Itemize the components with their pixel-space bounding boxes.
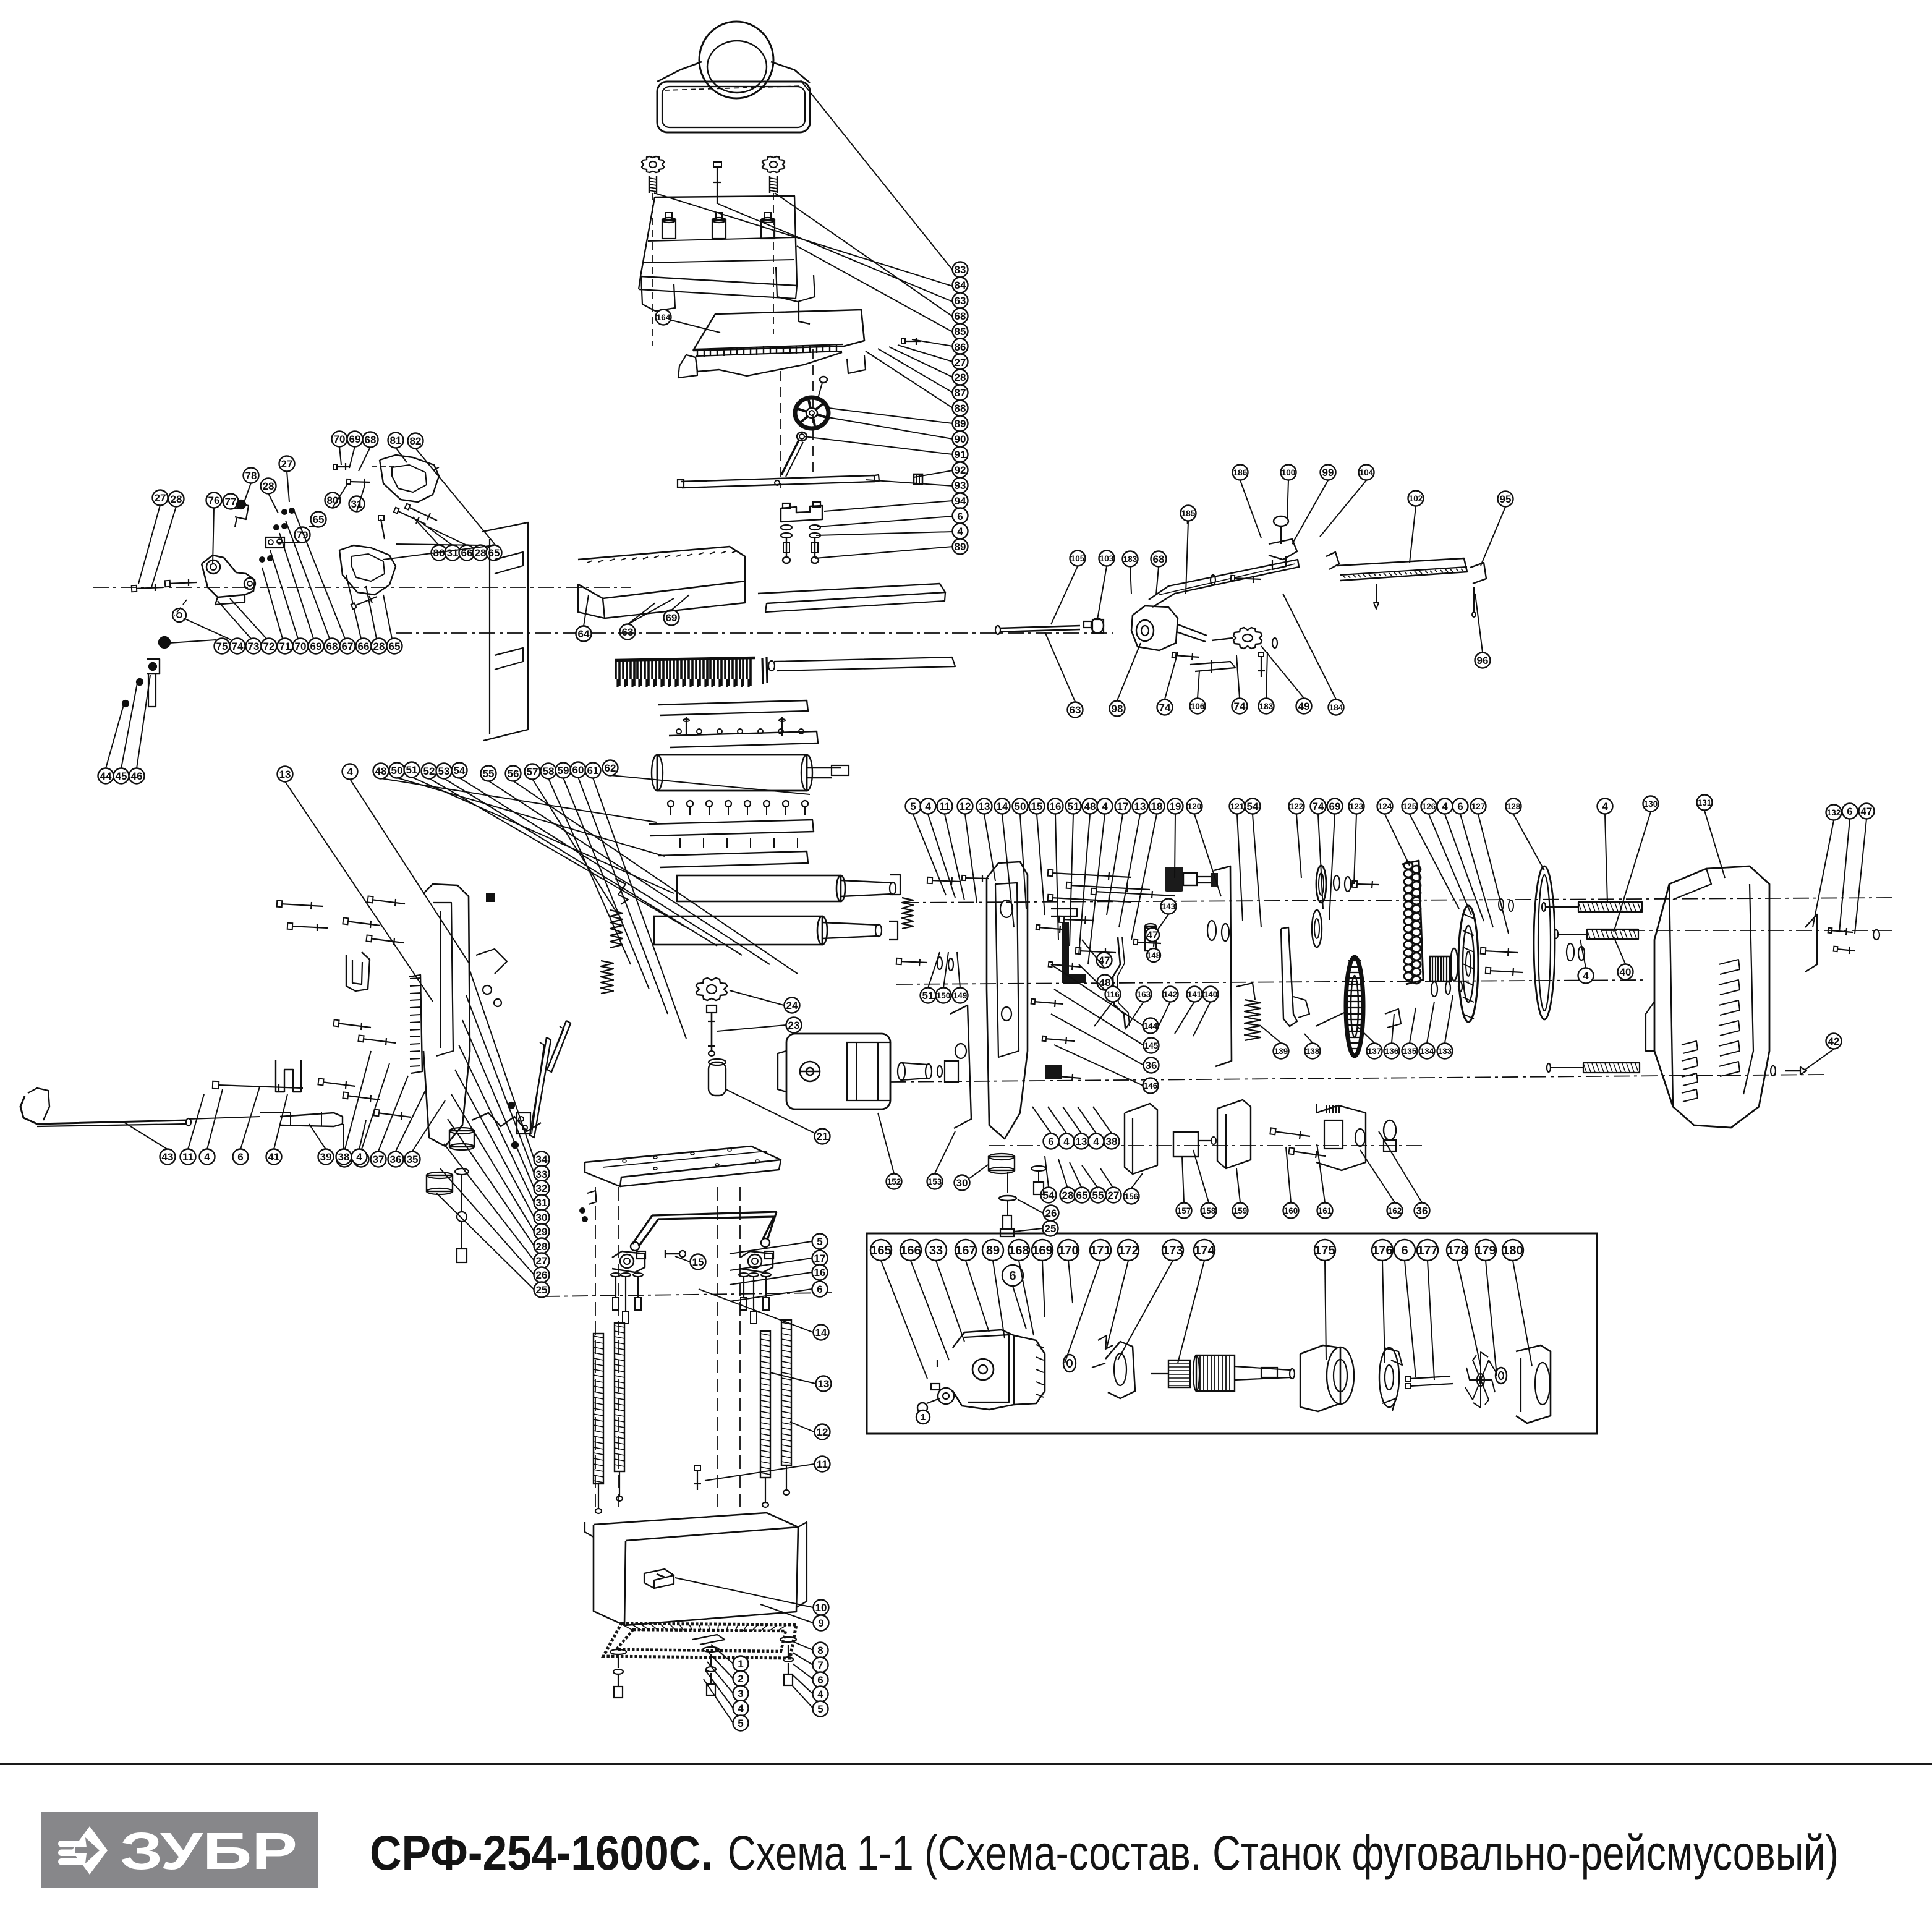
- svg-text:161: 161: [1318, 1206, 1332, 1215]
- svg-text:121: 121: [1230, 802, 1245, 811]
- svg-text:27: 27: [281, 458, 293, 470]
- svg-text:15: 15: [692, 1256, 704, 1268]
- svg-text:4: 4: [925, 801, 931, 812]
- svg-text:62: 62: [605, 762, 616, 774]
- svg-text:34: 34: [536, 1154, 548, 1165]
- svg-text:30: 30: [536, 1212, 548, 1223]
- svg-text:68: 68: [365, 434, 377, 446]
- svg-text:76: 76: [208, 495, 220, 506]
- svg-text:1: 1: [921, 1412, 926, 1423]
- svg-text:23: 23: [788, 1019, 800, 1031]
- svg-text:44: 44: [100, 770, 112, 782]
- svg-text:6: 6: [957, 511, 963, 522]
- svg-text:89: 89: [955, 541, 966, 553]
- svg-text:144: 144: [1144, 1021, 1158, 1031]
- svg-text:73: 73: [248, 640, 260, 652]
- svg-text:95: 95: [1500, 493, 1512, 505]
- svg-text:157: 157: [1177, 1206, 1191, 1215]
- svg-text:4: 4: [957, 526, 963, 537]
- svg-text:70: 70: [334, 433, 346, 445]
- svg-text:27: 27: [955, 357, 966, 368]
- svg-text:ЗУБР: ЗУБР: [120, 1822, 297, 1880]
- svg-text:100: 100: [1282, 468, 1296, 477]
- svg-text:63: 63: [955, 295, 966, 307]
- svg-text:28: 28: [171, 493, 182, 505]
- svg-text:74: 74: [232, 640, 244, 652]
- svg-text:33: 33: [536, 1168, 548, 1180]
- svg-text:18: 18: [1151, 801, 1163, 812]
- svg-text:124: 124: [1378, 802, 1392, 811]
- svg-text:53: 53: [438, 765, 450, 777]
- svg-text:68: 68: [1153, 553, 1165, 565]
- svg-text:65: 65: [1076, 1189, 1088, 1201]
- svg-text:68: 68: [955, 310, 966, 322]
- svg-text:51: 51: [1068, 801, 1079, 812]
- svg-text:10: 10: [815, 1602, 827, 1614]
- svg-text:42: 42: [1828, 1036, 1840, 1047]
- svg-text:92: 92: [955, 464, 966, 476]
- svg-text:47: 47: [1099, 955, 1110, 966]
- svg-text:133: 133: [1438, 1047, 1452, 1056]
- svg-text:5: 5: [817, 1236, 822, 1248]
- svg-text:179: 179: [1475, 1244, 1496, 1258]
- svg-text:150: 150: [937, 991, 951, 1000]
- svg-text:17: 17: [814, 1253, 826, 1264]
- svg-text:8: 8: [817, 1645, 823, 1656]
- svg-text:58: 58: [543, 765, 555, 777]
- svg-text:30: 30: [956, 1177, 968, 1189]
- svg-text:15: 15: [1031, 801, 1043, 812]
- svg-text:88: 88: [955, 402, 966, 414]
- svg-text:6: 6: [1847, 806, 1852, 817]
- svg-text:168: 168: [1008, 1244, 1029, 1258]
- svg-text:49: 49: [1298, 700, 1310, 712]
- svg-text:14: 14: [997, 801, 1008, 812]
- svg-text:69: 69: [349, 433, 361, 445]
- svg-text:4: 4: [817, 1688, 823, 1700]
- svg-text:142: 142: [1164, 990, 1178, 999]
- svg-text:69: 69: [666, 612, 678, 624]
- svg-text:6: 6: [1048, 1136, 1053, 1147]
- svg-text:51: 51: [406, 764, 418, 776]
- svg-text:184: 184: [1329, 703, 1343, 712]
- svg-text:19: 19: [1170, 801, 1181, 812]
- svg-text:43: 43: [162, 1151, 174, 1163]
- svg-text:27: 27: [536, 1255, 548, 1267]
- svg-text:70: 70: [295, 640, 307, 652]
- svg-text:173: 173: [1162, 1244, 1183, 1258]
- svg-text:106: 106: [1191, 702, 1205, 711]
- svg-text:85: 85: [955, 326, 966, 338]
- svg-text:4: 4: [738, 1703, 744, 1714]
- svg-text:17: 17: [1117, 801, 1129, 812]
- svg-text:21: 21: [817, 1131, 828, 1143]
- svg-text:141: 141: [1188, 990, 1202, 999]
- svg-text:163: 163: [1137, 990, 1151, 999]
- svg-text:11: 11: [939, 801, 950, 812]
- svg-text:90: 90: [955, 433, 966, 445]
- svg-text:46: 46: [131, 770, 143, 782]
- svg-text:87: 87: [955, 387, 966, 399]
- svg-text:52: 52: [423, 765, 435, 777]
- svg-text:167: 167: [955, 1244, 976, 1258]
- svg-text:77: 77: [225, 496, 237, 508]
- svg-text:4: 4: [204, 1151, 210, 1163]
- svg-text:165: 165: [870, 1244, 891, 1258]
- svg-text:164: 164: [657, 313, 671, 322]
- svg-text:75: 75: [216, 640, 228, 652]
- svg-text:81: 81: [390, 435, 402, 446]
- svg-text:170: 170: [1058, 1244, 1078, 1258]
- svg-text:102: 102: [1409, 494, 1423, 503]
- svg-text:65: 65: [389, 640, 401, 652]
- svg-text:156: 156: [1125, 1192, 1139, 1201]
- svg-text:64: 64: [578, 628, 590, 640]
- svg-text:69: 69: [310, 640, 322, 652]
- svg-text:50: 50: [391, 765, 403, 777]
- svg-text:89: 89: [955, 418, 966, 430]
- svg-text:54: 54: [1043, 1189, 1055, 1201]
- svg-text:160: 160: [1284, 1206, 1298, 1215]
- svg-text:4: 4: [347, 766, 353, 778]
- svg-text:126: 126: [1422, 802, 1436, 811]
- svg-text:159: 159: [1233, 1206, 1248, 1215]
- svg-text:99: 99: [1322, 467, 1334, 479]
- svg-text:98: 98: [1112, 703, 1123, 715]
- svg-text:1: 1: [738, 1658, 743, 1670]
- svg-text:16: 16: [814, 1267, 826, 1279]
- svg-text:186: 186: [1233, 468, 1248, 477]
- svg-text:28: 28: [263, 480, 274, 492]
- svg-text:47: 47: [1147, 929, 1159, 941]
- svg-text:40: 40: [1620, 966, 1632, 978]
- svg-text:4: 4: [1093, 1136, 1099, 1147]
- svg-text:14: 14: [815, 1327, 827, 1338]
- svg-text:57: 57: [527, 766, 538, 778]
- svg-text:13: 13: [279, 768, 291, 780]
- svg-text:48: 48: [1084, 801, 1096, 812]
- svg-text:11: 11: [817, 1458, 828, 1470]
- svg-text:103: 103: [1100, 554, 1114, 563]
- svg-text:5: 5: [738, 1717, 743, 1729]
- svg-text:105: 105: [1071, 554, 1085, 563]
- svg-text:41: 41: [268, 1151, 280, 1163]
- svg-text:131: 131: [1698, 798, 1712, 807]
- svg-text:54: 54: [454, 765, 466, 777]
- svg-text:74: 74: [1159, 702, 1171, 713]
- svg-text:5: 5: [910, 801, 916, 812]
- svg-text:91: 91: [955, 449, 966, 461]
- svg-text:136: 136: [1385, 1047, 1399, 1056]
- svg-text:27: 27: [1108, 1189, 1120, 1201]
- svg-text:47: 47: [1861, 806, 1873, 817]
- svg-text:71: 71: [279, 640, 291, 652]
- svg-text:Схема 1-1 (Схема-состав. Стано: Схема 1-1 (Схема-состав. Станок фуговаль…: [728, 1825, 1839, 1880]
- svg-text:32: 32: [536, 1183, 548, 1194]
- svg-text:63: 63: [1070, 704, 1081, 716]
- svg-text:116: 116: [1106, 990, 1120, 999]
- svg-text:6: 6: [1401, 1244, 1408, 1258]
- svg-text:12: 12: [817, 1426, 828, 1438]
- svg-text:67: 67: [342, 640, 354, 652]
- svg-text:59: 59: [558, 765, 569, 777]
- svg-text:68: 68: [326, 640, 338, 652]
- svg-text:38: 38: [338, 1151, 350, 1163]
- svg-text:4: 4: [356, 1151, 362, 1163]
- svg-text:180: 180: [1502, 1244, 1523, 1258]
- svg-text:45: 45: [116, 770, 127, 782]
- svg-text:6: 6: [1457, 801, 1463, 812]
- svg-text:31: 31: [536, 1197, 548, 1209]
- svg-text:6: 6: [817, 1283, 822, 1295]
- svg-text:4: 4: [1602, 801, 1608, 812]
- svg-text:162: 162: [1388, 1206, 1402, 1215]
- svg-text:24: 24: [786, 1000, 798, 1011]
- svg-text:26: 26: [536, 1269, 548, 1281]
- svg-text:145: 145: [1144, 1041, 1159, 1050]
- svg-text:4: 4: [1442, 801, 1448, 812]
- svg-text:172: 172: [1118, 1244, 1138, 1258]
- svg-text:6: 6: [237, 1151, 243, 1163]
- svg-text:61: 61: [587, 765, 599, 777]
- svg-text:11: 11: [182, 1151, 194, 1163]
- svg-text:169: 169: [1032, 1244, 1052, 1258]
- svg-text:93: 93: [955, 480, 966, 492]
- svg-text:6: 6: [817, 1674, 823, 1686]
- svg-text:138: 138: [1306, 1047, 1320, 1056]
- svg-text:153: 153: [928, 1177, 942, 1186]
- svg-text:82: 82: [410, 435, 422, 447]
- svg-text:139: 139: [1274, 1047, 1288, 1056]
- svg-text:9: 9: [818, 1617, 823, 1629]
- svg-text:134: 134: [1420, 1047, 1434, 1056]
- svg-text:148: 148: [1147, 951, 1161, 960]
- svg-text:36: 36: [1416, 1205, 1428, 1217]
- svg-text:25: 25: [1045, 1223, 1057, 1235]
- svg-text:4: 4: [1102, 801, 1108, 812]
- svg-text:33: 33: [929, 1244, 943, 1258]
- svg-text:146: 146: [1144, 1081, 1158, 1091]
- svg-text:78: 78: [245, 470, 257, 482]
- svg-text:51: 51: [922, 990, 934, 1002]
- svg-text:130: 130: [1644, 799, 1658, 809]
- svg-text:28: 28: [536, 1241, 548, 1253]
- svg-text:158: 158: [1202, 1206, 1216, 1215]
- svg-text:89: 89: [986, 1244, 1000, 1258]
- svg-text:12: 12: [960, 801, 971, 812]
- svg-text:26: 26: [1045, 1207, 1057, 1219]
- svg-text:29: 29: [536, 1226, 548, 1238]
- svg-text:177: 177: [1417, 1244, 1437, 1258]
- svg-text:120: 120: [1188, 802, 1202, 811]
- svg-text:37: 37: [373, 1154, 385, 1165]
- svg-text:149: 149: [953, 991, 968, 1000]
- svg-text:5: 5: [817, 1703, 823, 1715]
- svg-text:48: 48: [375, 765, 387, 777]
- svg-text:127: 127: [1471, 802, 1486, 811]
- svg-text:84: 84: [955, 279, 966, 291]
- svg-text:174: 174: [1194, 1244, 1215, 1258]
- svg-text:175: 175: [1314, 1244, 1335, 1258]
- svg-text:28: 28: [373, 640, 385, 652]
- svg-text:137: 137: [1368, 1047, 1382, 1056]
- svg-text:54: 54: [1247, 801, 1259, 812]
- svg-text:83: 83: [955, 264, 966, 276]
- svg-text:152: 152: [887, 1177, 901, 1186]
- svg-text:2: 2: [738, 1673, 743, 1685]
- svg-text:178: 178: [1447, 1244, 1467, 1258]
- svg-text:55: 55: [483, 768, 495, 780]
- svg-text:72: 72: [263, 640, 275, 652]
- svg-text:86: 86: [955, 341, 966, 353]
- svg-text:143: 143: [1162, 902, 1176, 911]
- svg-text:132: 132: [1827, 808, 1841, 817]
- svg-text:183: 183: [1123, 555, 1138, 564]
- svg-text:28: 28: [955, 372, 966, 383]
- svg-text:3: 3: [738, 1688, 743, 1700]
- svg-text:13: 13: [1076, 1136, 1087, 1147]
- svg-text:28: 28: [475, 547, 487, 559]
- svg-text:55: 55: [1092, 1189, 1104, 1201]
- svg-text:122: 122: [1290, 802, 1304, 811]
- svg-text:125: 125: [1403, 802, 1417, 811]
- svg-text:50: 50: [1015, 801, 1026, 812]
- svg-text:27: 27: [155, 492, 166, 504]
- svg-text:183: 183: [1259, 702, 1274, 711]
- svg-text:56: 56: [508, 768, 519, 780]
- svg-text:65: 65: [313, 514, 325, 526]
- svg-text:66: 66: [358, 640, 370, 652]
- svg-text:171: 171: [1090, 1244, 1110, 1258]
- svg-text:13: 13: [818, 1378, 830, 1390]
- svg-text:7: 7: [817, 1659, 823, 1671]
- svg-text:6: 6: [1009, 1269, 1016, 1283]
- svg-text:16: 16: [1050, 801, 1062, 812]
- svg-text:96: 96: [1477, 655, 1489, 666]
- svg-text:4: 4: [1583, 970, 1589, 982]
- svg-text:128: 128: [1507, 802, 1521, 811]
- svg-text:94: 94: [955, 495, 966, 507]
- svg-text:35: 35: [407, 1154, 419, 1165]
- svg-text:36: 36: [390, 1154, 402, 1165]
- svg-text:63: 63: [622, 626, 634, 638]
- svg-text:74: 74: [1234, 700, 1246, 712]
- svg-text:166: 166: [900, 1244, 921, 1258]
- svg-text:104: 104: [1360, 468, 1374, 477]
- svg-text:74: 74: [1313, 801, 1324, 812]
- svg-text:60: 60: [572, 764, 584, 776]
- svg-text:13: 13: [979, 801, 990, 812]
- svg-text:25: 25: [536, 1284, 548, 1296]
- svg-text:28: 28: [1062, 1189, 1074, 1201]
- svg-text:176: 176: [1372, 1244, 1392, 1258]
- svg-text:36: 36: [1146, 1060, 1157, 1071]
- svg-text:39: 39: [320, 1151, 332, 1163]
- svg-text:13: 13: [1134, 801, 1146, 812]
- svg-text:135: 135: [1403, 1047, 1417, 1056]
- svg-text:69: 69: [1329, 801, 1341, 812]
- svg-text:123: 123: [1350, 802, 1364, 811]
- svg-text:185: 185: [1181, 509, 1196, 518]
- svg-text:38: 38: [1106, 1136, 1118, 1147]
- svg-text:4: 4: [1063, 1136, 1070, 1147]
- svg-text:СРФ-254-1600С.: СРФ-254-1600С.: [370, 1825, 713, 1880]
- svg-text:31: 31: [447, 547, 459, 559]
- svg-text:140: 140: [1204, 990, 1218, 999]
